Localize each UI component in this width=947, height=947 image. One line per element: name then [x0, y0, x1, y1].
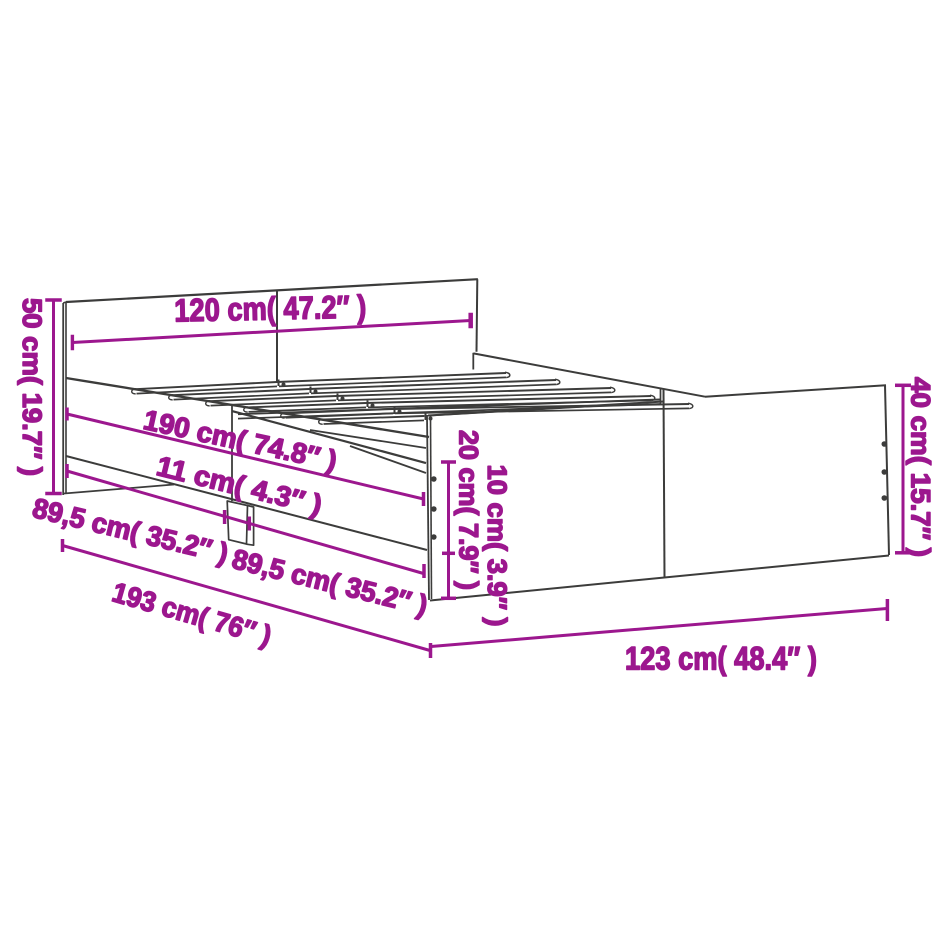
svg-text:20 cm( 7.9″ ): 20 cm( 7.9″ ) — [454, 430, 484, 590]
svg-text:40 cm( 15.7″ ): 40 cm( 15.7″ ) — [906, 377, 936, 557]
svg-text:50 cm( 19.7″ ): 50 cm( 19.7″ ) — [17, 298, 47, 476]
svg-text:120 cm( 47.2″ ): 120 cm( 47.2″ ) — [174, 288, 367, 328]
svg-text:123 cm( 48.4″ ): 123 cm( 48.4″ ) — [625, 640, 817, 676]
svg-text:10 cm( 3.9″ ): 10 cm( 3.9″ ) — [482, 465, 512, 627]
